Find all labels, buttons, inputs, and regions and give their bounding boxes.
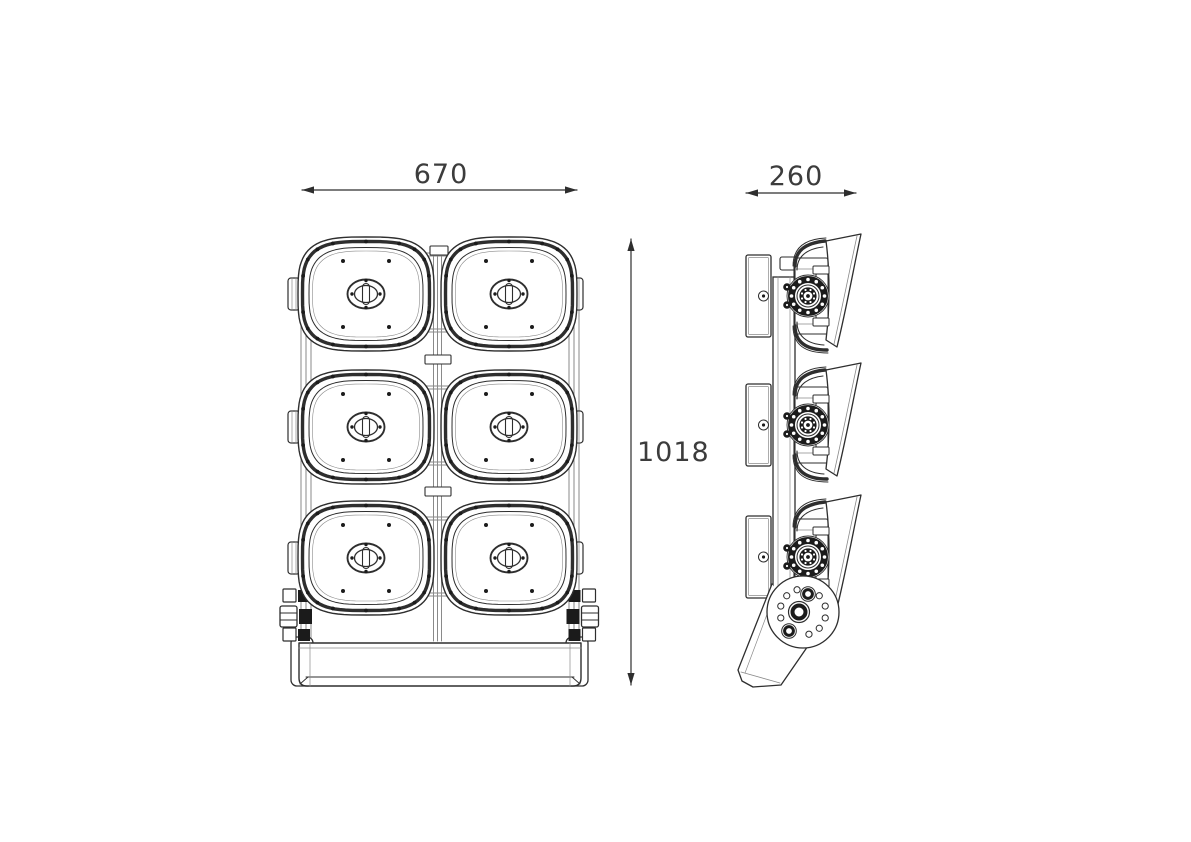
lamp-module-front-r2c2 [441,370,577,484]
dimension-height-label: 1018 [637,437,710,468]
lamp-module-front-r3c2 [441,501,577,615]
dimension-depth-label: 260 [769,161,824,192]
cable-gland [787,275,829,317]
back-plate-3 [746,516,771,598]
lamp-module-side-1 [783,234,861,353]
dimension-width-label: 670 [414,159,469,190]
front-view [280,237,599,686]
cable-gland [787,404,829,446]
lamp-module-front-r1c1 [298,237,434,351]
base-plate [291,637,588,686]
side-view [738,234,861,687]
dimension-height: 1018 [627,239,709,685]
lamp-module-front-r1c2 [441,237,577,351]
lamp-module-front-r2c1 [298,370,434,484]
back-plate-1 [746,255,771,337]
lamp-module-front-r3c1 [298,501,434,615]
drawing-page: 6702601018 [0,0,1191,842]
dimension-depth: 260 [746,161,856,197]
cable-gland [787,536,829,578]
pivot-disc [767,576,839,648]
back-plate-2 [746,384,771,466]
dimension-width: 670 [302,159,577,194]
floodlight-technical-drawing: 6702601018 [0,0,1191,842]
